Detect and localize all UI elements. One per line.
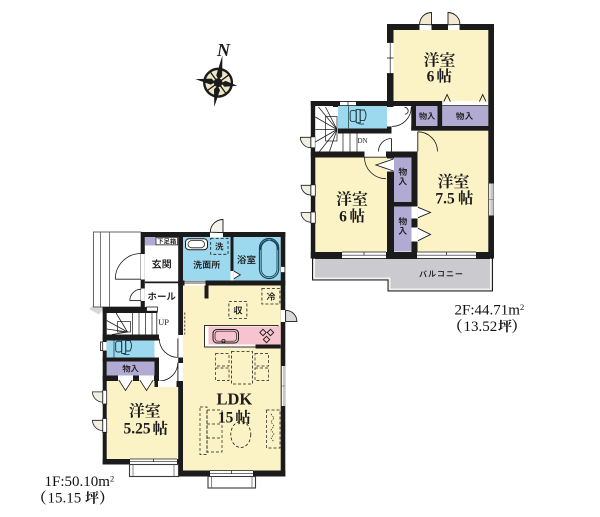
svg-text:15: 15: [218, 410, 234, 427]
svg-text:DN: DN: [357, 137, 367, 145]
svg-text:5.25: 5.25: [123, 421, 150, 438]
svg-text:6: 6: [339, 209, 347, 226]
svg-text:LDK: LDK: [217, 390, 253, 409]
svg-text:6: 6: [427, 69, 435, 86]
svg-text:7.5: 7.5: [435, 191, 455, 208]
svg-text:UP: UP: [158, 317, 169, 327]
svg-text:13.52: 13.52: [464, 319, 498, 335]
svg-text:15.15: 15.15: [48, 491, 82, 507]
svg-text:1F:50.10m2: 1F:50.10m2: [45, 474, 115, 491]
svg-text:2F:44.71m2: 2F:44.71m2: [455, 302, 525, 319]
svg-text:N: N: [216, 40, 231, 60]
